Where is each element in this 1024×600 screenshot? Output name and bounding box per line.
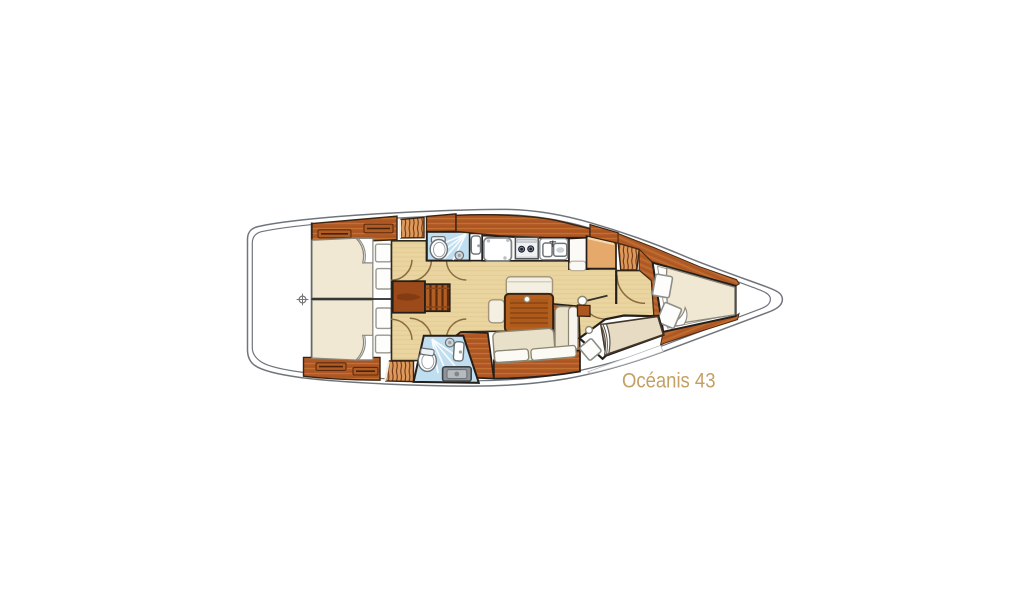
svg-text:Océanis 43: Océanis 43 [622, 368, 716, 392]
